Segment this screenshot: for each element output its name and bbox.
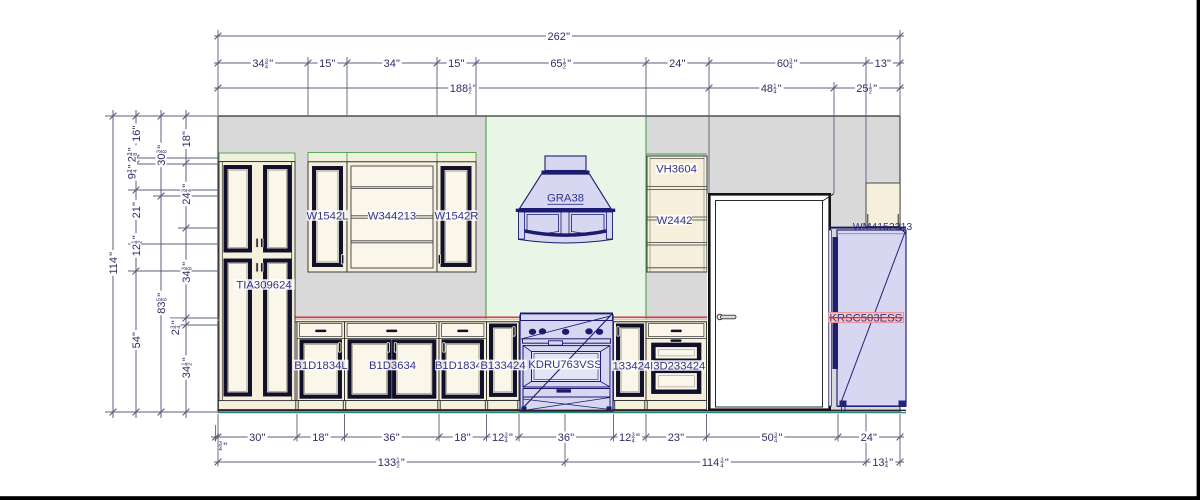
svg-text:18: 18 (312, 432, 324, 444)
svg-text:KRSC503ESS: KRSC503ESS (829, 312, 902, 324)
svg-text:": " (682, 58, 686, 70)
svg-text:2: 2 (468, 89, 471, 95)
svg-text:KDRU763VSS: KDRU763VSS (528, 359, 602, 371)
svg-text:": " (778, 83, 782, 95)
svg-text:": " (794, 58, 798, 70)
svg-text:2: 2 (187, 362, 193, 365)
svg-text:36: 36 (383, 432, 395, 444)
svg-text:": " (262, 432, 266, 444)
svg-text:13: 13 (872, 457, 884, 469)
svg-text:": " (170, 320, 182, 324)
svg-text:8: 8 (162, 298, 168, 301)
svg-text:": " (131, 202, 143, 206)
svg-text:262: 262 (548, 31, 566, 43)
svg-text:2: 2 (869, 89, 872, 95)
svg-text:": " (873, 83, 877, 95)
svg-text:VH3604: VH3604 (656, 164, 697, 176)
svg-text:B133424: B133424 (480, 360, 525, 372)
svg-text:15: 15 (448, 58, 460, 70)
svg-text:": " (467, 432, 471, 444)
svg-text:": " (223, 441, 227, 453)
svg-text:13: 13 (875, 58, 887, 70)
svg-text:65: 65 (550, 58, 562, 70)
svg-text:30: 30 (156, 153, 168, 165)
svg-text:": " (873, 432, 877, 444)
svg-text:34: 34 (181, 366, 193, 378)
svg-text:": " (396, 58, 400, 70)
svg-text:": " (156, 145, 168, 149)
svg-text:": " (396, 432, 400, 444)
svg-text:12: 12 (619, 432, 631, 444)
svg-text:2: 2 (137, 240, 143, 243)
svg-text:24: 24 (669, 58, 681, 70)
svg-text:": " (269, 58, 273, 70)
svg-text:": " (779, 432, 783, 444)
svg-text:8: 8 (187, 267, 193, 270)
svg-text:": " (570, 432, 574, 444)
svg-text:34: 34 (384, 58, 396, 70)
svg-text:": " (509, 432, 513, 444)
svg-text:15: 15 (319, 58, 331, 70)
svg-text:TIA309624: TIA309624 (236, 280, 291, 292)
svg-text:": " (181, 357, 193, 361)
svg-text:12: 12 (131, 244, 143, 256)
svg-text:W1542L: W1542L (306, 211, 348, 223)
svg-text:": " (108, 252, 120, 256)
svg-text:34: 34 (181, 270, 193, 282)
svg-text:B1D3634: B1D3634 (369, 360, 416, 372)
svg-text:16: 16 (131, 130, 143, 142)
svg-text:": " (181, 131, 193, 135)
svg-text:2: 2 (396, 463, 399, 469)
svg-text:": " (887, 58, 891, 70)
svg-text:8: 8 (162, 150, 168, 153)
svg-text:": " (127, 164, 139, 168)
svg-text:133424R: 133424R (613, 361, 659, 373)
svg-text:": " (131, 235, 143, 239)
svg-text:": " (332, 58, 336, 70)
svg-text:": " (127, 147, 139, 151)
svg-text:24: 24 (861, 432, 873, 444)
svg-text:18: 18 (454, 432, 466, 444)
svg-text:": " (680, 432, 684, 444)
svg-text:36: 36 (558, 432, 570, 444)
svg-text:W344213: W344213 (368, 211, 416, 223)
svg-text:": " (889, 457, 893, 469)
svg-text:": " (131, 126, 143, 130)
svg-text:": " (566, 31, 570, 43)
svg-text:48: 48 (761, 83, 773, 95)
svg-text:34: 34 (252, 58, 264, 70)
svg-text:50: 50 (762, 432, 774, 444)
svg-text:": " (325, 432, 329, 444)
svg-text:": " (461, 58, 465, 70)
svg-text:30: 30 (249, 432, 261, 444)
svg-text:": " (181, 262, 193, 266)
svg-text:114: 114 (702, 457, 720, 469)
svg-text:": " (567, 58, 571, 70)
svg-text:": " (725, 457, 729, 469)
svg-text:": " (401, 457, 405, 469)
svg-text:2: 2 (127, 156, 139, 162)
svg-text:24: 24 (181, 192, 193, 204)
svg-text:3D233424: 3D233424 (653, 361, 705, 373)
svg-text:114: 114 (108, 257, 120, 275)
svg-text:188: 188 (450, 83, 468, 95)
svg-text:B1D1834L: B1D1834L (294, 360, 347, 372)
svg-text:21: 21 (131, 206, 143, 218)
svg-text:25: 25 (856, 83, 868, 95)
svg-text:12: 12 (492, 432, 504, 444)
svg-text:133: 133 (378, 457, 396, 469)
svg-text:54: 54 (131, 336, 143, 348)
svg-text:9: 9 (127, 173, 139, 179)
svg-text:": " (156, 293, 168, 297)
svg-text:23: 23 (668, 432, 680, 444)
svg-text:2: 2 (563, 64, 566, 70)
svg-text:8: 8 (133, 152, 139, 155)
svg-text:18: 18 (181, 135, 193, 147)
svg-text:": " (131, 332, 143, 336)
svg-text:GRA38: GRA38 (547, 193, 584, 205)
svg-text:W1542R: W1542R (435, 211, 479, 223)
svg-text:": " (181, 184, 193, 188)
svg-text:60: 60 (777, 58, 789, 70)
svg-text:2: 2 (170, 329, 182, 335)
svg-text:83: 83 (156, 301, 168, 313)
svg-text:W2442: W2442 (657, 215, 693, 227)
svg-text:": " (636, 432, 640, 444)
